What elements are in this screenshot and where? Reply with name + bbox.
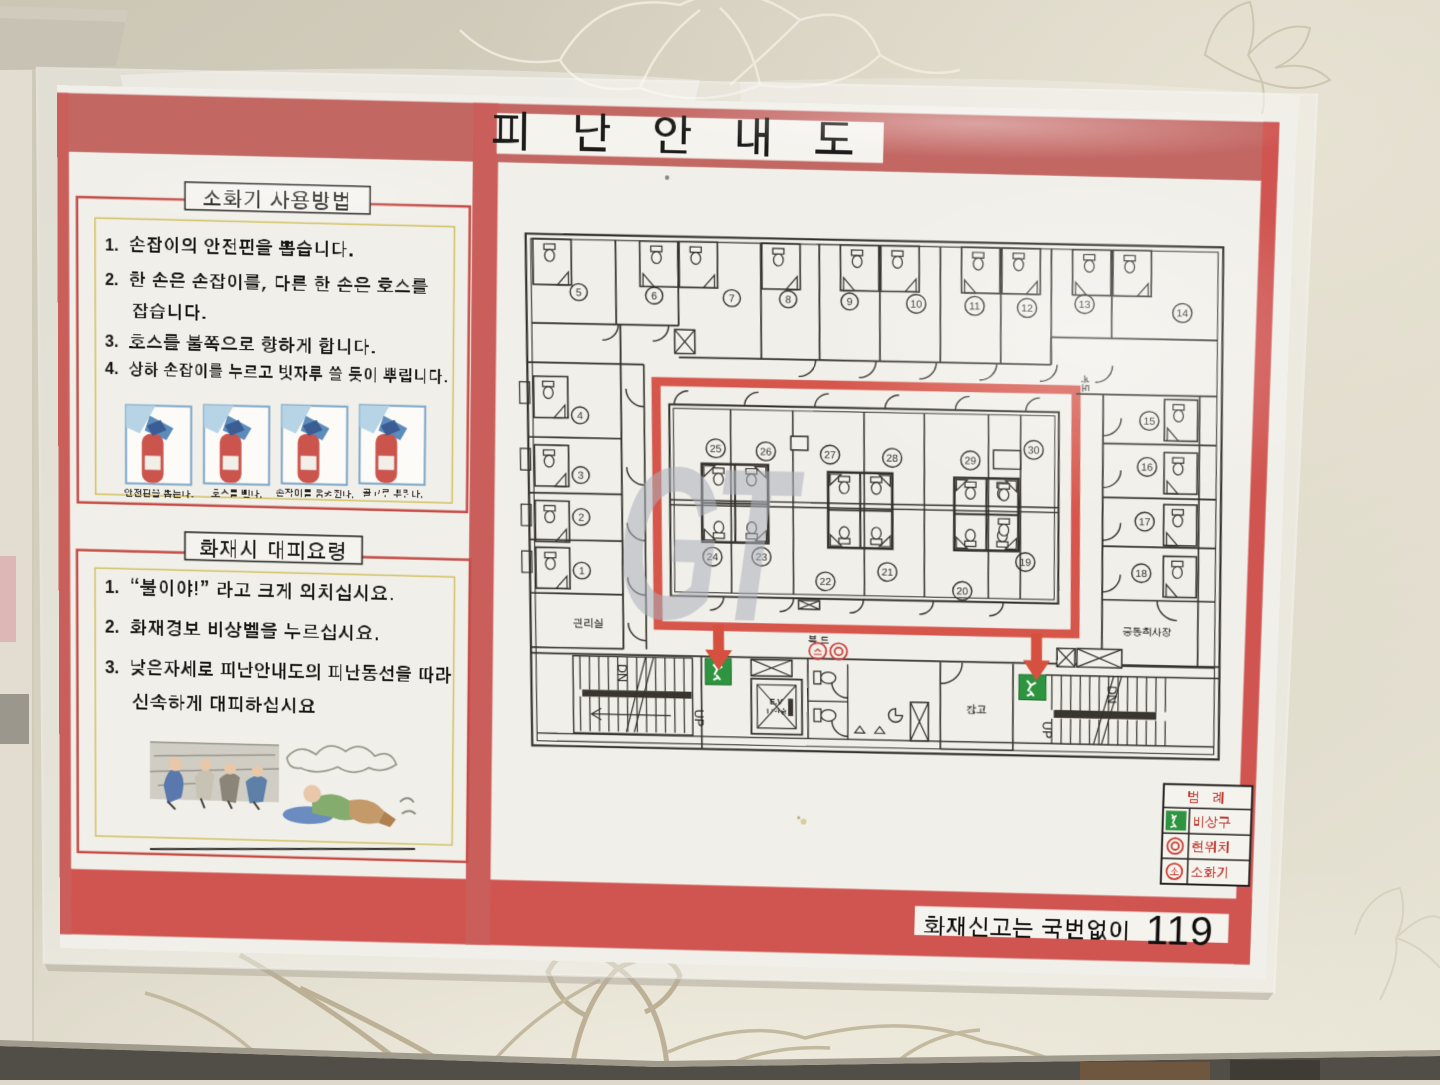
svg-text:4.: 4. [105,359,119,378]
svg-text:5: 5 [576,287,582,299]
svg-text:17: 17 [1139,516,1151,528]
svg-text:DN: DN [1105,686,1120,704]
svg-text:6: 6 [651,290,657,302]
svg-text:1.: 1. [105,577,119,597]
svg-text:2.: 2. [105,617,119,637]
svg-text:UP: UP [692,709,707,727]
svg-text:DN: DN [615,664,630,682]
svg-text:2.: 2. [105,270,119,289]
svg-text:3.: 3. [105,657,119,677]
svg-text:4: 4 [577,410,583,422]
svg-text:27: 27 [824,449,836,461]
svg-text:7: 7 [729,293,735,305]
svg-text:8: 8 [785,294,791,306]
svg-text:3: 3 [578,470,584,482]
svg-text:GT: GT [615,422,806,669]
svg-text:2: 2 [578,512,584,524]
svg-text:18: 18 [1135,568,1147,580]
svg-text:E.V: E.V [770,697,783,706]
svg-text:3.: 3. [105,332,119,351]
svg-text:UP: UP [1040,721,1055,739]
svg-text:22: 22 [820,576,832,588]
svg-text:20: 20 [956,586,968,598]
svg-text:1.: 1. [105,235,119,254]
svg-text:21: 21 [882,567,894,579]
svg-text:1: 1 [579,565,585,577]
svg-text:19: 19 [1019,557,1031,569]
svg-text:119: 119 [1145,908,1215,956]
